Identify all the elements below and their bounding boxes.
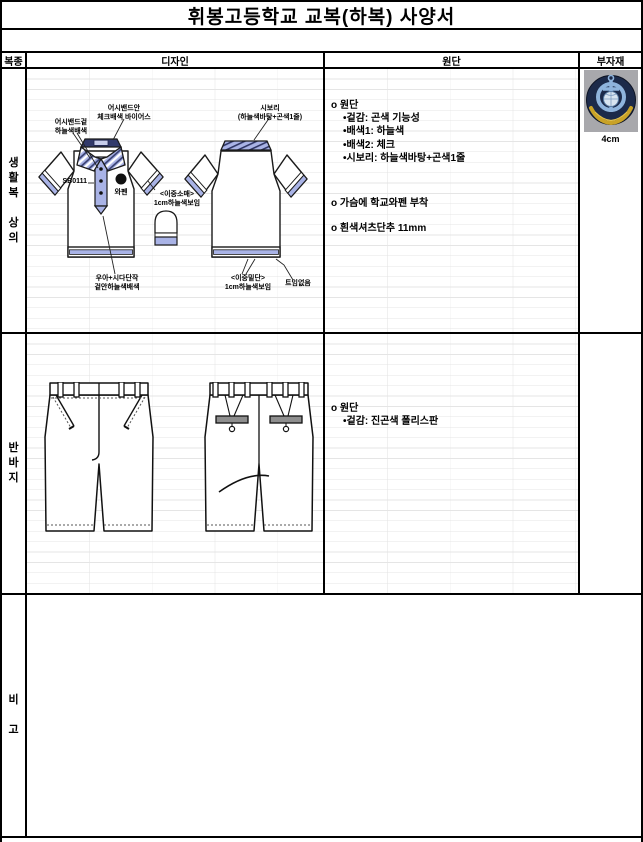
label-collar-outer: 어시밴드겉 하늘색배색 bbox=[31, 119, 111, 136]
label-sb-code: SB0111 bbox=[43, 178, 87, 187]
emblem-size-label: 4cm bbox=[601, 134, 619, 144]
label-double-sleeve: <이중소매> 1cm하늘색보임 bbox=[139, 191, 215, 208]
design-cell-middle bbox=[27, 334, 325, 595]
header-fabric: 원단 bbox=[325, 53, 580, 69]
materials-cell-middle bbox=[580, 334, 641, 595]
label-sibori: 시보리 (하늘색바탕+곤색1줄) bbox=[220, 105, 320, 122]
spec-table: 복종 디자인 원단 부자재 생 활 복 상 의 bbox=[2, 51, 641, 838]
category-top: 생 활 복 상 의 bbox=[2, 69, 27, 334]
category-middle: 반 바 지 bbox=[2, 334, 27, 595]
fabric-note: o 흰색셔츠단추 11mm bbox=[331, 222, 574, 235]
header-materials: 부자재 bbox=[580, 53, 641, 69]
shorts-front-drawing bbox=[43, 382, 155, 540]
fabric-cell-top: o 원단 •겉감: 곤색 기능성 •배색1: 하늘색 •배색2: 체크 •시보리… bbox=[325, 69, 580, 334]
fabric-note: o 원단 bbox=[331, 402, 574, 415]
fabric-note: •시보리: 하늘색바탕+곤색1줄 bbox=[331, 152, 574, 165]
school-emblem-photo bbox=[584, 70, 638, 132]
fabric-note: o 원단 bbox=[331, 99, 574, 112]
fabric-cell-middle: o 원단 •겉감: 진곤색 폴리스판 bbox=[325, 334, 580, 595]
fabric-note: •겉감: 곤색 기능성 bbox=[331, 112, 574, 125]
category-bottom: 비 고 bbox=[2, 595, 27, 836]
fabric-note: •배색1: 하늘색 bbox=[331, 125, 574, 138]
design-cell-top: 어시밴드안 체크배색 바이어스 어시밴드겉 하늘색배색 시보리 (하늘색바탕+곤… bbox=[27, 69, 325, 334]
shorts-back-drawing bbox=[203, 382, 315, 540]
label-wappen: 와펜 bbox=[106, 189, 136, 198]
remarks-cell bbox=[27, 595, 641, 836]
spec-sheet-page: 휘봉고등학교 교복(하복) 사양서 복종 디자인 원단 부자재 생 활 복 상 … bbox=[0, 0, 643, 842]
label-no-slit: 트임없음 bbox=[268, 280, 328, 289]
document-title: 휘봉고등학교 교복(하복) 사양서 bbox=[2, 2, 641, 30]
fabric-note: •겉감: 진곤색 폴리스판 bbox=[331, 415, 574, 428]
label-placket-bottom: 우아+시다단작 겉안하늘색배색 bbox=[77, 275, 157, 292]
fabric-note: •배색2: 체크 bbox=[331, 139, 574, 152]
fabric-note: o 가슴에 학교와펜 부착 bbox=[331, 197, 574, 210]
header-design: 디자인 bbox=[27, 53, 325, 69]
materials-cell-top: 4cm bbox=[580, 69, 641, 334]
header-category: 복종 bbox=[2, 53, 27, 69]
